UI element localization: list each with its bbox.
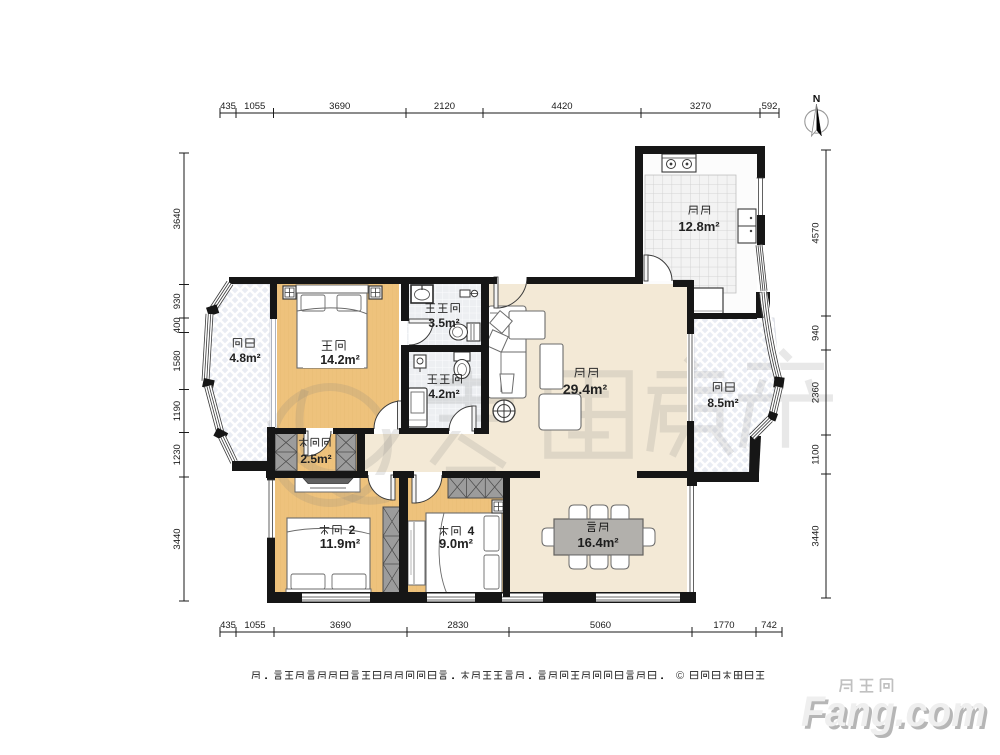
- svg-text:3440: 3440: [811, 525, 822, 546]
- svg-text:1055: 1055: [244, 101, 265, 112]
- svg-text:3.5m²: 3.5m²: [428, 316, 459, 330]
- svg-text:400: 400: [172, 317, 183, 333]
- svg-text:940: 940: [811, 325, 822, 341]
- svg-text:1100: 1100: [811, 444, 822, 464]
- svg-text:2360: 2360: [811, 382, 822, 403]
- svg-text:1190: 1190: [172, 401, 183, 421]
- svg-text:2: 2: [349, 523, 356, 537]
- svg-text:©: ©: [676, 670, 684, 682]
- svg-text:2830: 2830: [447, 620, 468, 631]
- svg-text:3690: 3690: [329, 101, 350, 112]
- svg-text:Fang.com: Fang.com: [801, 688, 986, 736]
- svg-text:9.0m²: 9.0m²: [439, 536, 474, 551]
- svg-text:11.9m²: 11.9m²: [320, 536, 361, 551]
- svg-text:16.4m²: 16.4m²: [577, 535, 619, 550]
- svg-text:4.8m²: 4.8m²: [229, 351, 260, 365]
- svg-text:3640: 3640: [172, 208, 183, 229]
- svg-text:3270: 3270: [690, 101, 711, 112]
- svg-text:1580: 1580: [172, 350, 183, 371]
- svg-text:29.4m²: 29.4m²: [563, 381, 608, 397]
- svg-text:5060: 5060: [590, 620, 611, 631]
- svg-text:3440: 3440: [172, 528, 183, 549]
- svg-text:N: N: [813, 93, 821, 105]
- svg-text:12.8m²: 12.8m²: [678, 219, 720, 234]
- svg-text:4420: 4420: [551, 101, 572, 112]
- svg-text:742: 742: [761, 620, 777, 631]
- svg-text:592: 592: [762, 101, 778, 112]
- svg-text:4570: 4570: [811, 222, 822, 243]
- svg-text:435: 435: [220, 620, 236, 631]
- svg-text:930: 930: [172, 293, 183, 309]
- svg-text:3690: 3690: [330, 620, 351, 631]
- svg-text:2120: 2120: [434, 101, 455, 112]
- svg-text:1055: 1055: [244, 620, 265, 631]
- svg-text:2.5m²: 2.5m²: [300, 452, 331, 466]
- svg-text:1230: 1230: [172, 444, 183, 465]
- svg-text:4.2m²: 4.2m²: [428, 387, 459, 401]
- svg-text:435: 435: [220, 101, 236, 112]
- svg-text:8.5m²: 8.5m²: [707, 396, 738, 410]
- svg-text:1770: 1770: [713, 620, 734, 631]
- svg-text:14.2m²: 14.2m²: [320, 353, 360, 367]
